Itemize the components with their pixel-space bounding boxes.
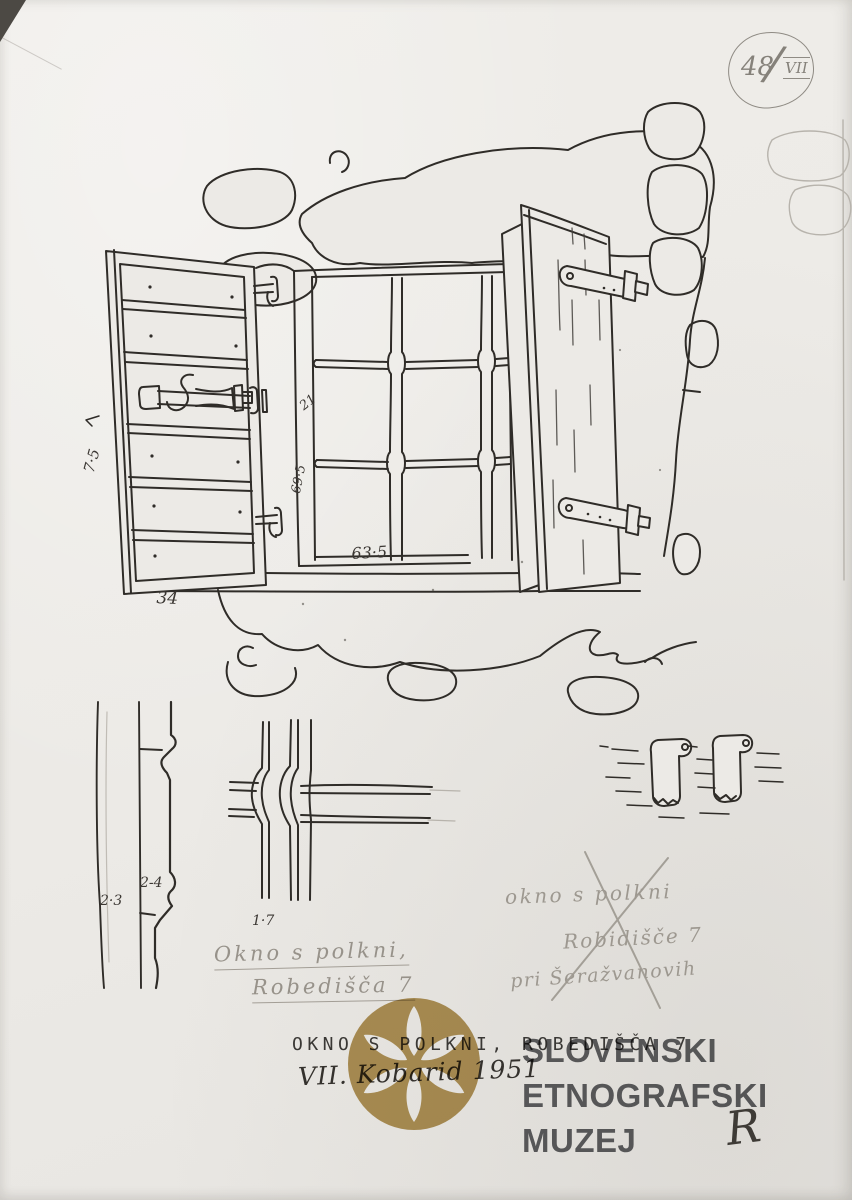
archive-number-stamp: 48 / VII	[726, 30, 818, 112]
stone-wall-bottom	[218, 590, 696, 714]
signature-initial: R	[723, 1098, 764, 1156]
measurement-window-width: 63·5	[351, 542, 388, 563]
left-shutter	[106, 250, 266, 594]
measurement-shutter-width: 34	[156, 588, 179, 609]
pencil-stone-sketches	[768, 120, 851, 580]
window-grille-bars	[314, 276, 510, 560]
window-frame	[256, 264, 512, 566]
right-shutter	[502, 205, 620, 592]
hatching	[600, 746, 783, 818]
detail-scroll-hinges	[600, 735, 783, 818]
detail-grille-crossing	[229, 720, 460, 900]
scanned-document-page: 48 / VII 7·5 34 21 69·5 63·5 2·3 2-4 1·7…	[0, 0, 852, 1200]
measurement-bar-detail: 1·7	[252, 913, 274, 929]
typed-caption: OKNO S POLKNI, ROBEDIŠČA 7	[292, 1034, 691, 1055]
stone-detail	[330, 151, 349, 172]
wall-edge-line	[664, 258, 705, 556]
pencil-title-line2: Robedišča 7	[252, 973, 415, 1004]
window-technical-drawing	[0, 0, 852, 1200]
measurement-profile-b: 2-4	[140, 875, 163, 891]
stone-wall-top	[203, 103, 718, 367]
measurement-profile-a: 2·3	[100, 893, 122, 909]
pencil-title-line1: Okno s polkni,	[214, 937, 409, 970]
stamp-series: VII	[783, 57, 810, 79]
detail-jamb-profile	[97, 702, 176, 988]
